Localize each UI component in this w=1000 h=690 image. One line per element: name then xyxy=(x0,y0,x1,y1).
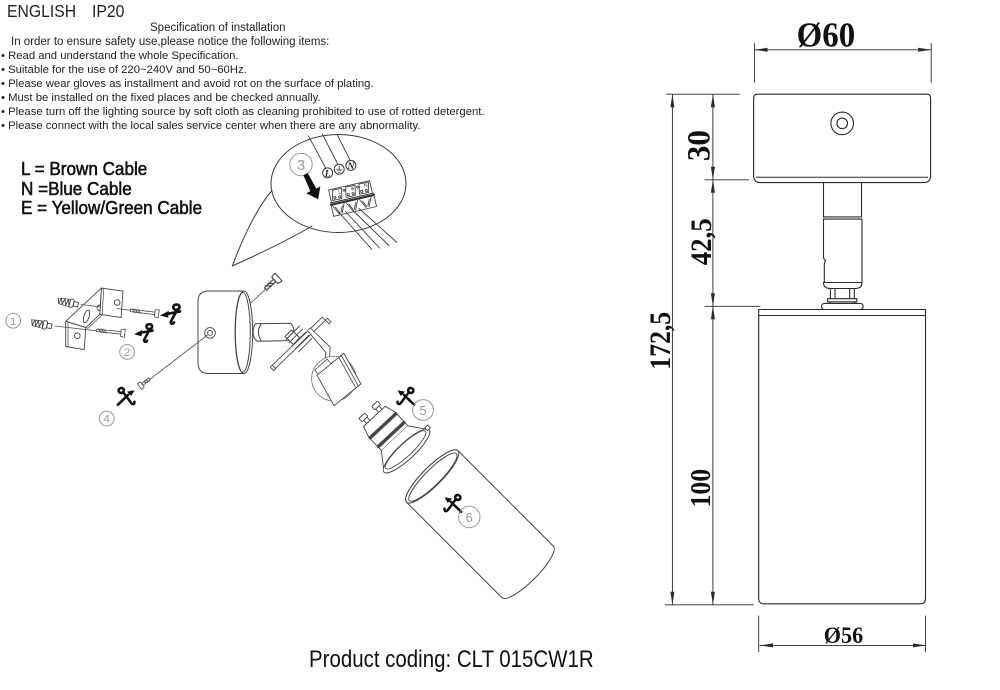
svg-text:5: 5 xyxy=(419,403,426,418)
svg-text:L: L xyxy=(324,169,331,179)
svg-text:100: 100 xyxy=(685,469,717,508)
svg-text:Ø60: Ø60 xyxy=(797,16,856,55)
svg-text:N: N xyxy=(364,183,369,190)
svg-text:42,5: 42,5 xyxy=(685,218,718,265)
svg-text:172,5: 172,5 xyxy=(644,312,677,370)
svg-text:3: 3 xyxy=(297,157,305,174)
svg-text:2: 2 xyxy=(124,347,130,359)
svg-text:6: 6 xyxy=(466,510,473,525)
svg-text:30: 30 xyxy=(682,130,718,161)
svg-text:N: N xyxy=(346,162,355,172)
svg-text:Ø56: Ø56 xyxy=(824,623,864,649)
svg-text:⊕: ⊕ xyxy=(350,186,355,192)
svg-text:4: 4 xyxy=(104,414,110,426)
svg-text:1: 1 xyxy=(10,316,16,328)
